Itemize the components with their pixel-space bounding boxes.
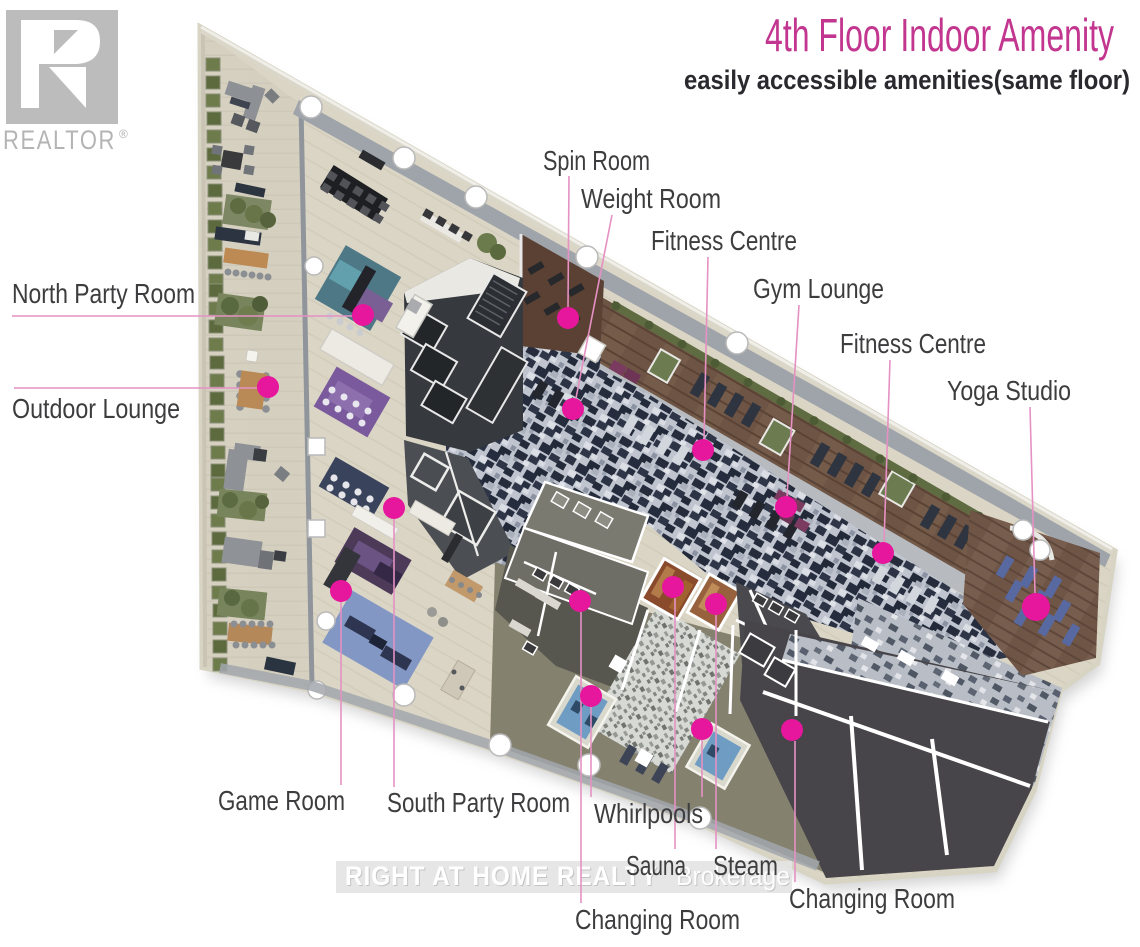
svg-text:Steam: Steam (713, 850, 778, 881)
svg-text:Whirlpools: Whirlpools (594, 798, 703, 829)
svg-text:Changing Room: Changing Room (789, 883, 955, 914)
svg-text:Changing Room: Changing Room (575, 904, 740, 935)
svg-text:South Party Room: South Party Room (387, 787, 570, 818)
svg-text:RIGHT AT HOME REALTY: RIGHT AT HOME REALTY (345, 861, 658, 891)
svg-text:easily accessible amenities(sa: easily accessible amenities(same floor) (684, 65, 1130, 95)
svg-text:Spin Room: Spin Room (543, 145, 650, 176)
svg-text:Weight Room: Weight Room (581, 183, 721, 214)
svg-text:North Party Room: North Party Room (12, 278, 195, 309)
svg-text:4th Floor Indoor Amenity: 4th Floor Indoor Amenity (765, 9, 1114, 61)
svg-text:Sauna: Sauna (626, 850, 686, 881)
svg-text:Outdoor Lounge: Outdoor Lounge (12, 393, 180, 424)
svg-text:Yoga Studio: Yoga Studio (947, 375, 1071, 406)
svg-text:®: ® (119, 127, 128, 141)
svg-text:Fitness Centre: Fitness Centre (651, 225, 797, 256)
svg-text:REALTOR: REALTOR (3, 125, 116, 155)
svg-text:Gym Lounge: Gym Lounge (753, 273, 884, 304)
svg-text:Game Room: Game Room (218, 785, 345, 816)
svg-text:Fitness Centre: Fitness Centre (840, 328, 986, 359)
